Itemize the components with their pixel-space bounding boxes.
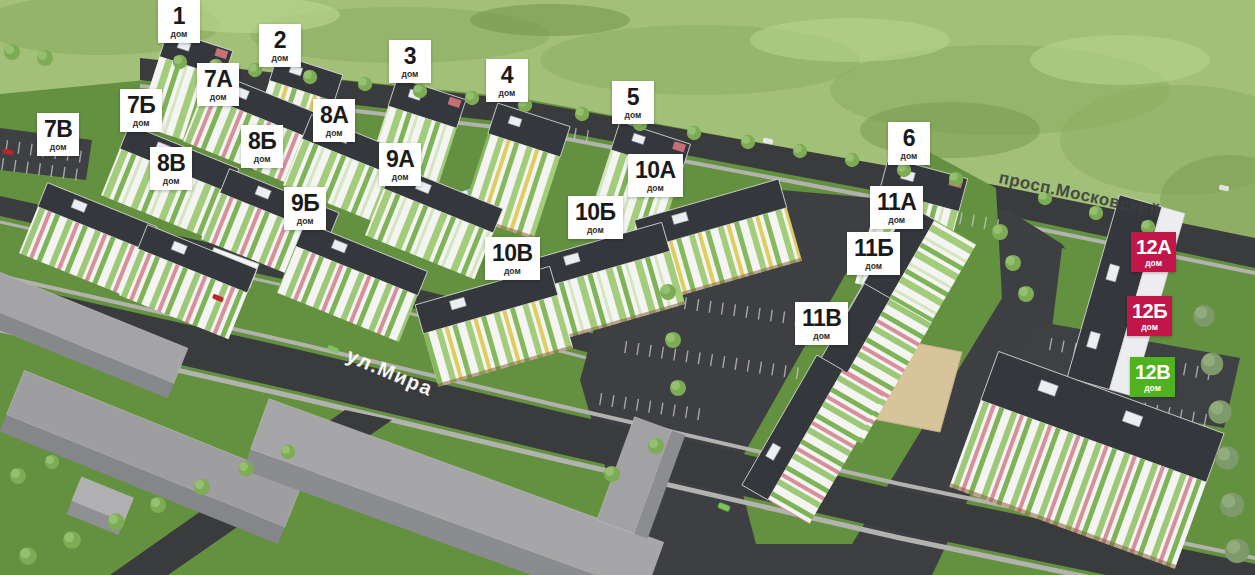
dom-caption: дом xyxy=(492,267,533,276)
building-number: 11Б xyxy=(854,237,893,260)
dom-caption: дом xyxy=(895,152,923,161)
building-label-11b[interactable]: 11Б дом xyxy=(847,232,900,275)
building-number: 9А xyxy=(386,148,414,171)
dom-caption: дом xyxy=(127,119,155,128)
building-label-10a[interactable]: 10А дом xyxy=(628,154,683,197)
dom-caption: дом xyxy=(266,54,294,63)
building-number: 7В xyxy=(44,118,72,141)
building-label-7a[interactable]: 7А дом xyxy=(197,63,239,106)
building-label-5[interactable]: 5 дом xyxy=(612,81,654,124)
building-label-12v[interactable]: 12В дом xyxy=(1130,357,1175,397)
dom-caption: дом xyxy=(877,216,916,225)
dom-caption: дом xyxy=(802,332,841,341)
dom-caption: дом xyxy=(1135,384,1170,393)
dom-caption: дом xyxy=(386,173,414,182)
dom-caption: дом xyxy=(157,177,185,186)
building-number: 7Б xyxy=(127,94,155,117)
dom-caption: дом xyxy=(635,184,676,193)
dom-caption: дом xyxy=(320,129,348,138)
building-number: 1 xyxy=(165,5,193,28)
dom-caption: дом xyxy=(575,226,616,235)
building-label-12b[interactable]: 12Б дом xyxy=(1127,296,1172,336)
dom-caption: дом xyxy=(1132,323,1167,332)
dom-caption: дом xyxy=(248,155,276,164)
dom-caption: дом xyxy=(396,70,424,79)
dom-caption: дом xyxy=(44,143,72,152)
building-label-11a[interactable]: 11А дом xyxy=(870,186,923,229)
dom-caption: дом xyxy=(291,217,319,226)
building-number: 8А xyxy=(320,104,348,127)
building-label-4[interactable]: 4 дом xyxy=(486,59,528,102)
building-number: 6 xyxy=(895,127,923,150)
dom-caption: дом xyxy=(165,30,193,39)
building-label-11v[interactable]: 11В дом xyxy=(795,302,848,345)
building-label-9a[interactable]: 9А дом xyxy=(379,143,421,186)
building-label-6[interactable]: 6 дом xyxy=(888,122,930,165)
building-number: 2 xyxy=(266,29,294,52)
building-label-7v[interactable]: 7В дом xyxy=(37,113,79,156)
building-number: 9Б xyxy=(291,192,319,215)
building-number: 11В xyxy=(802,307,841,330)
building-label-1[interactable]: 1 дом xyxy=(158,0,200,43)
building-number: 12А xyxy=(1136,237,1171,257)
masterplan-scene: ул.Мира просп.Московский 1 дом 2 дом 3 д… xyxy=(0,0,1255,575)
building-label-8a[interactable]: 8А дом xyxy=(313,99,355,142)
building-number: 11А xyxy=(877,191,916,214)
building-label-12a[interactable]: 12А дом xyxy=(1131,232,1176,272)
building-number: 5 xyxy=(619,86,647,109)
building-number: 3 xyxy=(396,45,424,68)
dom-caption: дом xyxy=(619,111,647,120)
dom-caption: дом xyxy=(493,89,521,98)
building-label-10b[interactable]: 10Б дом xyxy=(568,196,623,239)
building-number: 8В xyxy=(157,152,185,175)
dom-caption: дом xyxy=(204,93,232,102)
building-label-2[interactable]: 2 дом xyxy=(259,24,301,67)
building-number: 10Б xyxy=(575,201,616,224)
dom-caption: дом xyxy=(1136,259,1171,268)
building-number: 10В xyxy=(492,242,533,265)
building-number: 12В xyxy=(1135,362,1170,382)
building-label-8v[interactable]: 8В дом xyxy=(150,147,192,190)
building-number: 12Б xyxy=(1132,301,1167,321)
building-number: 4 xyxy=(493,64,521,87)
building-label-10v[interactable]: 10В дом xyxy=(485,237,540,280)
building-number: 7А xyxy=(204,68,232,91)
building-label-9b[interactable]: 9Б дом xyxy=(284,187,326,230)
building-number: 10А xyxy=(635,159,676,182)
dom-caption: дом xyxy=(854,262,893,271)
building-label-8b[interactable]: 8Б дом xyxy=(241,125,283,168)
building-label-3[interactable]: 3 дом xyxy=(389,40,431,83)
building-label-7b[interactable]: 7Б дом xyxy=(120,89,162,132)
building-number: 8Б xyxy=(248,130,276,153)
